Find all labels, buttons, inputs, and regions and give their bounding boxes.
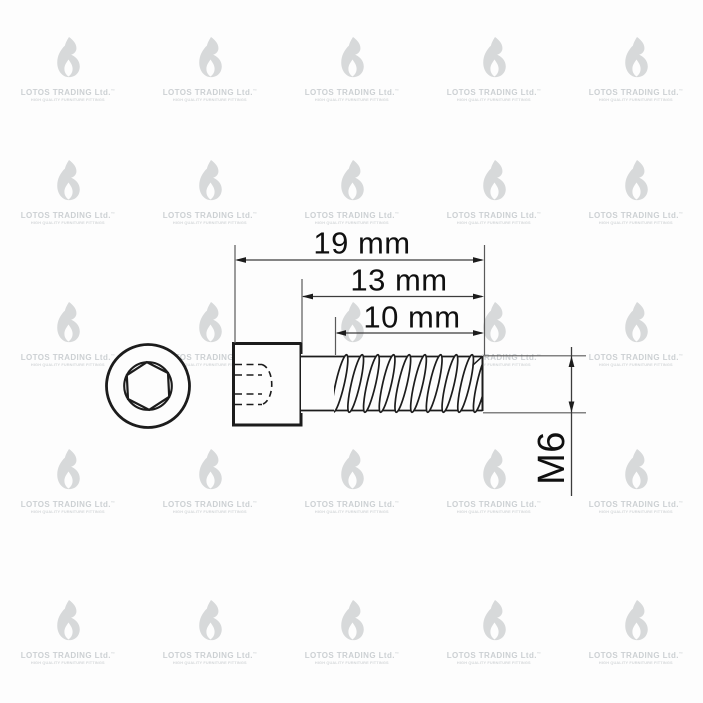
arrow-19mm-left [235, 257, 246, 263]
arrow-m6-bottom [569, 402, 575, 413]
arrow-13mm-left [302, 294, 313, 300]
arrow-m6-top [569, 356, 575, 367]
dim-label-below-head-length: 13 mm [350, 265, 447, 296]
dim-label-thread-size: M6 [533, 431, 571, 485]
screw-end-view [107, 345, 190, 428]
dim-label-thread-length: 10 mm [363, 302, 460, 333]
screw-drawing [0, 0, 703, 703]
screw-side-view [234, 344, 493, 426]
screw-head [234, 344, 302, 426]
dim-label-total-length: 19 mm [313, 228, 410, 259]
arrow-10mm-right [473, 330, 484, 336]
arrow-19mm-right [473, 257, 484, 263]
screw-shaft [301, 354, 492, 413]
arrow-10mm-left [336, 330, 347, 336]
arrow-13mm-right [473, 294, 484, 300]
technical-drawing-page: LOTOS TRADING Ltd.™ HIGH QUALITY FURNITU… [0, 0, 703, 703]
